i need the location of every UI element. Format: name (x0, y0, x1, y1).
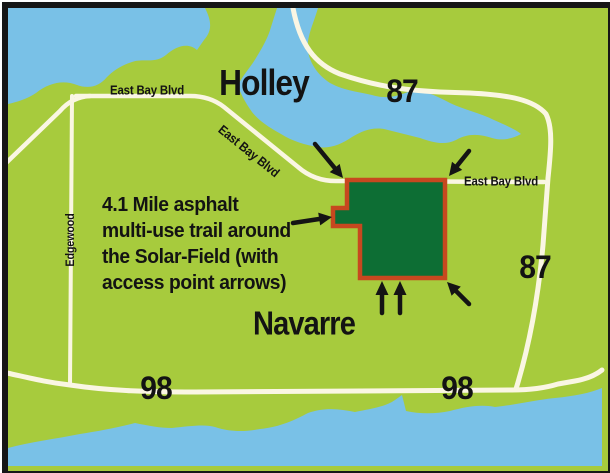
map-frame (2, 2, 610, 473)
map-screenshot: Holley Navarre 87 87 98 98 East Bay Blvd… (0, 0, 610, 473)
